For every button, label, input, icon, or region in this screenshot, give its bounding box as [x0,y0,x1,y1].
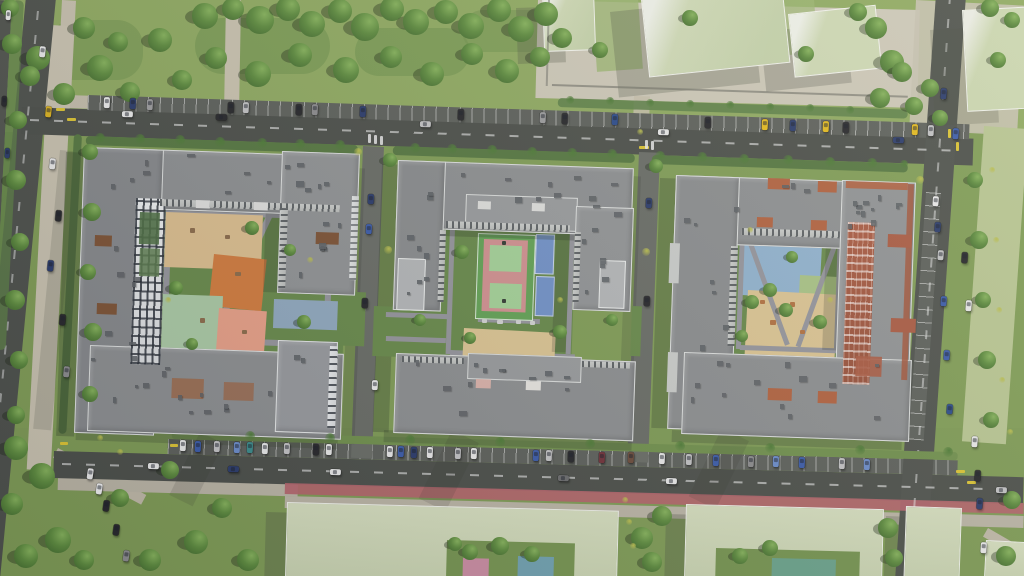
light-overlay [0,0,1024,576]
aerial-residential-render [0,0,1024,576]
